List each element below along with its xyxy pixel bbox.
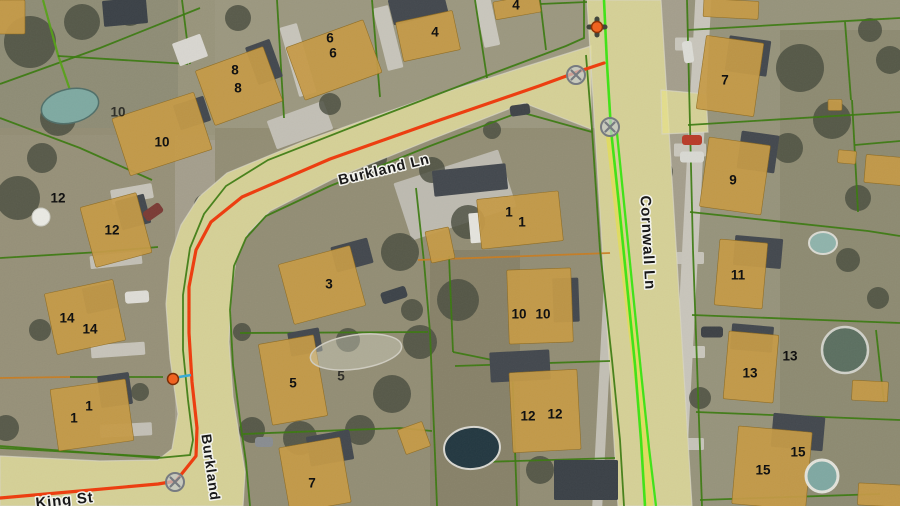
aerial-grain-overlay [0, 0, 900, 506]
map-svg: 8866441010121214141131110105512127791113… [0, 0, 900, 506]
map-viewport[interactable]: 8866441010121214141131110105512127791113… [0, 0, 900, 506]
